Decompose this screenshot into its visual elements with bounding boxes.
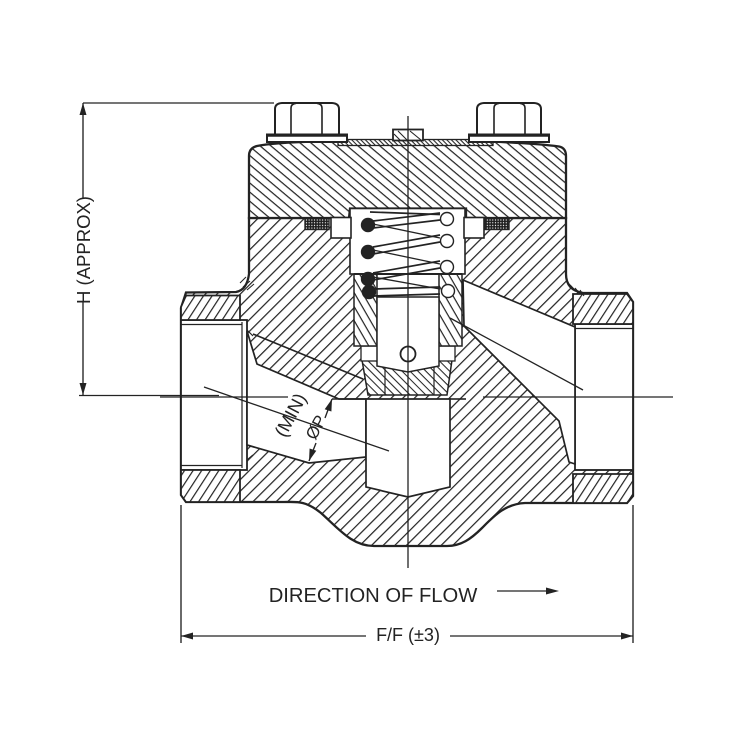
svg-text:F/F (±3): F/F (±3) <box>376 625 440 645</box>
svg-text:H (APPROX): H (APPROX) <box>73 196 94 304</box>
svg-text:DIRECTION OF FLOW: DIRECTION OF FLOW <box>269 585 478 607</box>
